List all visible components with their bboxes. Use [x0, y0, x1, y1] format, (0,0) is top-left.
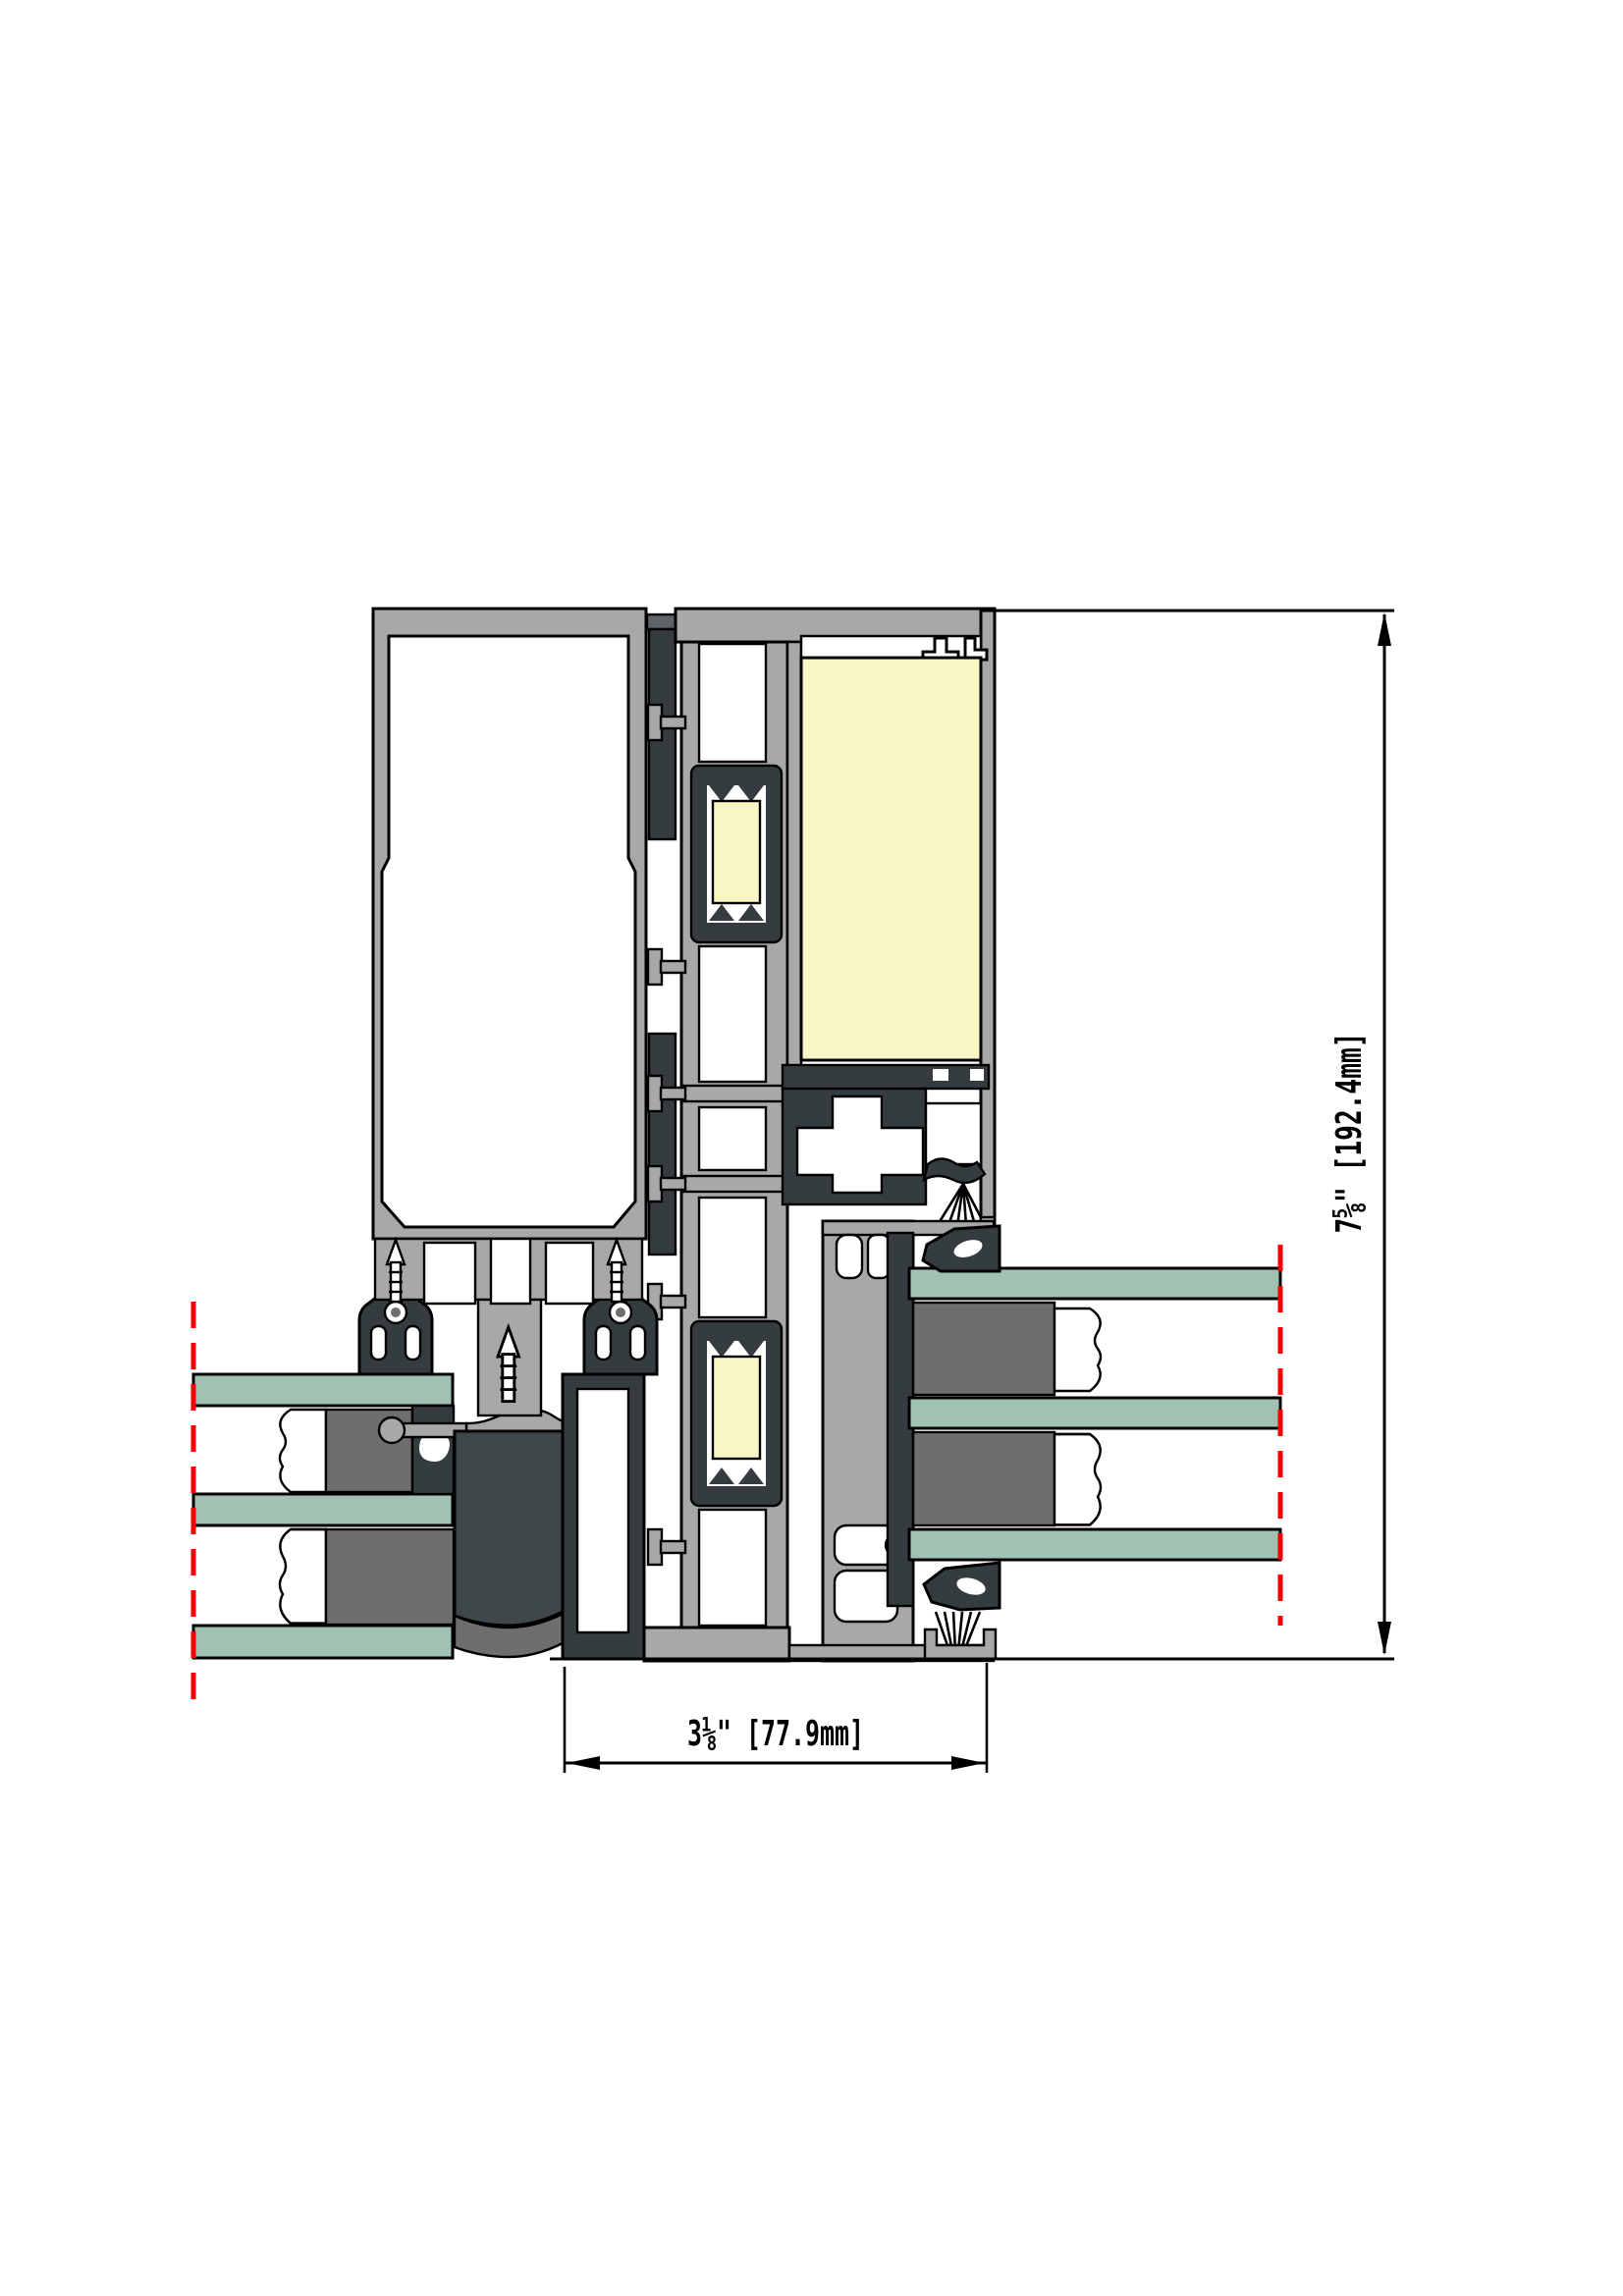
glazing-wedge-lower	[924, 1563, 1000, 1610]
dim-height-label: 7⅝" [192.4mm]	[1329, 1033, 1370, 1234]
glazing-bead-box	[563, 1374, 644, 1659]
glass-pane	[909, 1529, 1280, 1560]
spacer-profile	[280, 1529, 326, 1624]
section-drawing: 7⅝" [192.4mm] 3⅛" [77.9mm]	[0, 0, 1623, 2296]
mullion-cap-profile	[373, 609, 646, 1239]
mullion-cap-cavity	[382, 636, 635, 1227]
dimension-width: 3⅛" [77.9mm]	[565, 1663, 987, 1773]
interlock-profile	[783, 1065, 995, 1235]
setting-block	[455, 1431, 563, 1626]
spacer-profile	[1055, 1308, 1101, 1391]
chamber	[699, 1107, 766, 1170]
weather-gasket	[924, 1158, 985, 1182]
thermal-isolator-lower	[691, 1321, 782, 1506]
spacer	[913, 1432, 1055, 1525]
chamber	[699, 644, 766, 762]
spacer	[913, 1303, 1055, 1395]
glass-unit-left	[193, 1374, 454, 1658]
insulation-foam-large	[801, 658, 981, 1060]
glazing-gasket-left	[359, 1297, 432, 1374]
insulation-foam	[713, 1357, 760, 1459]
chamber	[699, 1510, 766, 1626]
glass-pane	[193, 1494, 453, 1525]
spacer-profile	[1055, 1434, 1101, 1524]
dim-width-label: 3⅛" [77.9mm]	[687, 1714, 864, 1754]
brush-seal-upper	[939, 1184, 984, 1226]
thermal-isolator-upper	[691, 766, 782, 942]
bottom-flange	[644, 1628, 789, 1661]
chamber	[699, 946, 766, 1082]
glass-pane	[193, 1626, 453, 1658]
glass-pane	[909, 1398, 1280, 1428]
glass-pane	[193, 1374, 453, 1406]
gasket-column	[412, 1406, 454, 1494]
glass-pane	[909, 1268, 1280, 1299]
drawing-page: 7⅝" [192.4mm] 3⅛" [77.9mm]	[0, 0, 1623, 2296]
spacer-profile	[280, 1410, 326, 1492]
insulation-foam	[713, 801, 760, 903]
chamber	[699, 1198, 766, 1317]
glazing-gasket-right	[584, 1297, 657, 1374]
glass-unit-right	[909, 1226, 1280, 1610]
gasket-bulb	[379, 1417, 405, 1443]
spacer	[326, 1529, 454, 1625]
